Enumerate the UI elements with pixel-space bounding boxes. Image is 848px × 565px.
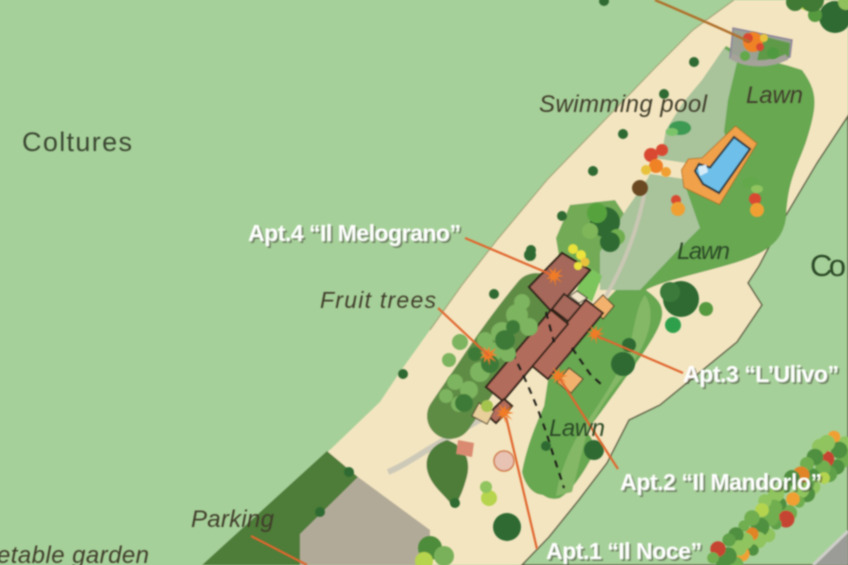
svg-text:Lawn: Lawn: [677, 238, 731, 265]
svg-text:Swimming pool: Swimming pool: [539, 91, 708, 118]
svg-text:Apt.2 “Il Mandorlo”: Apt.2 “Il Mandorlo”: [620, 469, 822, 495]
svg-text:Fruit trees: Fruit trees: [320, 287, 437, 313]
svg-text:Co: Co: [810, 248, 848, 283]
svg-text:Coltures: Coltures: [22, 127, 135, 157]
svg-text:etable garden: etable garden: [0, 542, 150, 565]
svg-text:Apt.1 “Il Noce”: Apt.1 “Il Noce”: [546, 538, 702, 564]
svg-text:Apt.3 “L’Ulivo”: Apt.3 “L’Ulivo”: [683, 361, 839, 387]
svg-text:Lawn: Lawn: [549, 415, 606, 442]
svg-text:Apt.4 “Il Melograno”: Apt.4 “Il Melograno”: [248, 220, 461, 246]
svg-text:Lawn: Lawn: [746, 82, 804, 109]
svg-text:Parking: Parking: [191, 506, 275, 533]
